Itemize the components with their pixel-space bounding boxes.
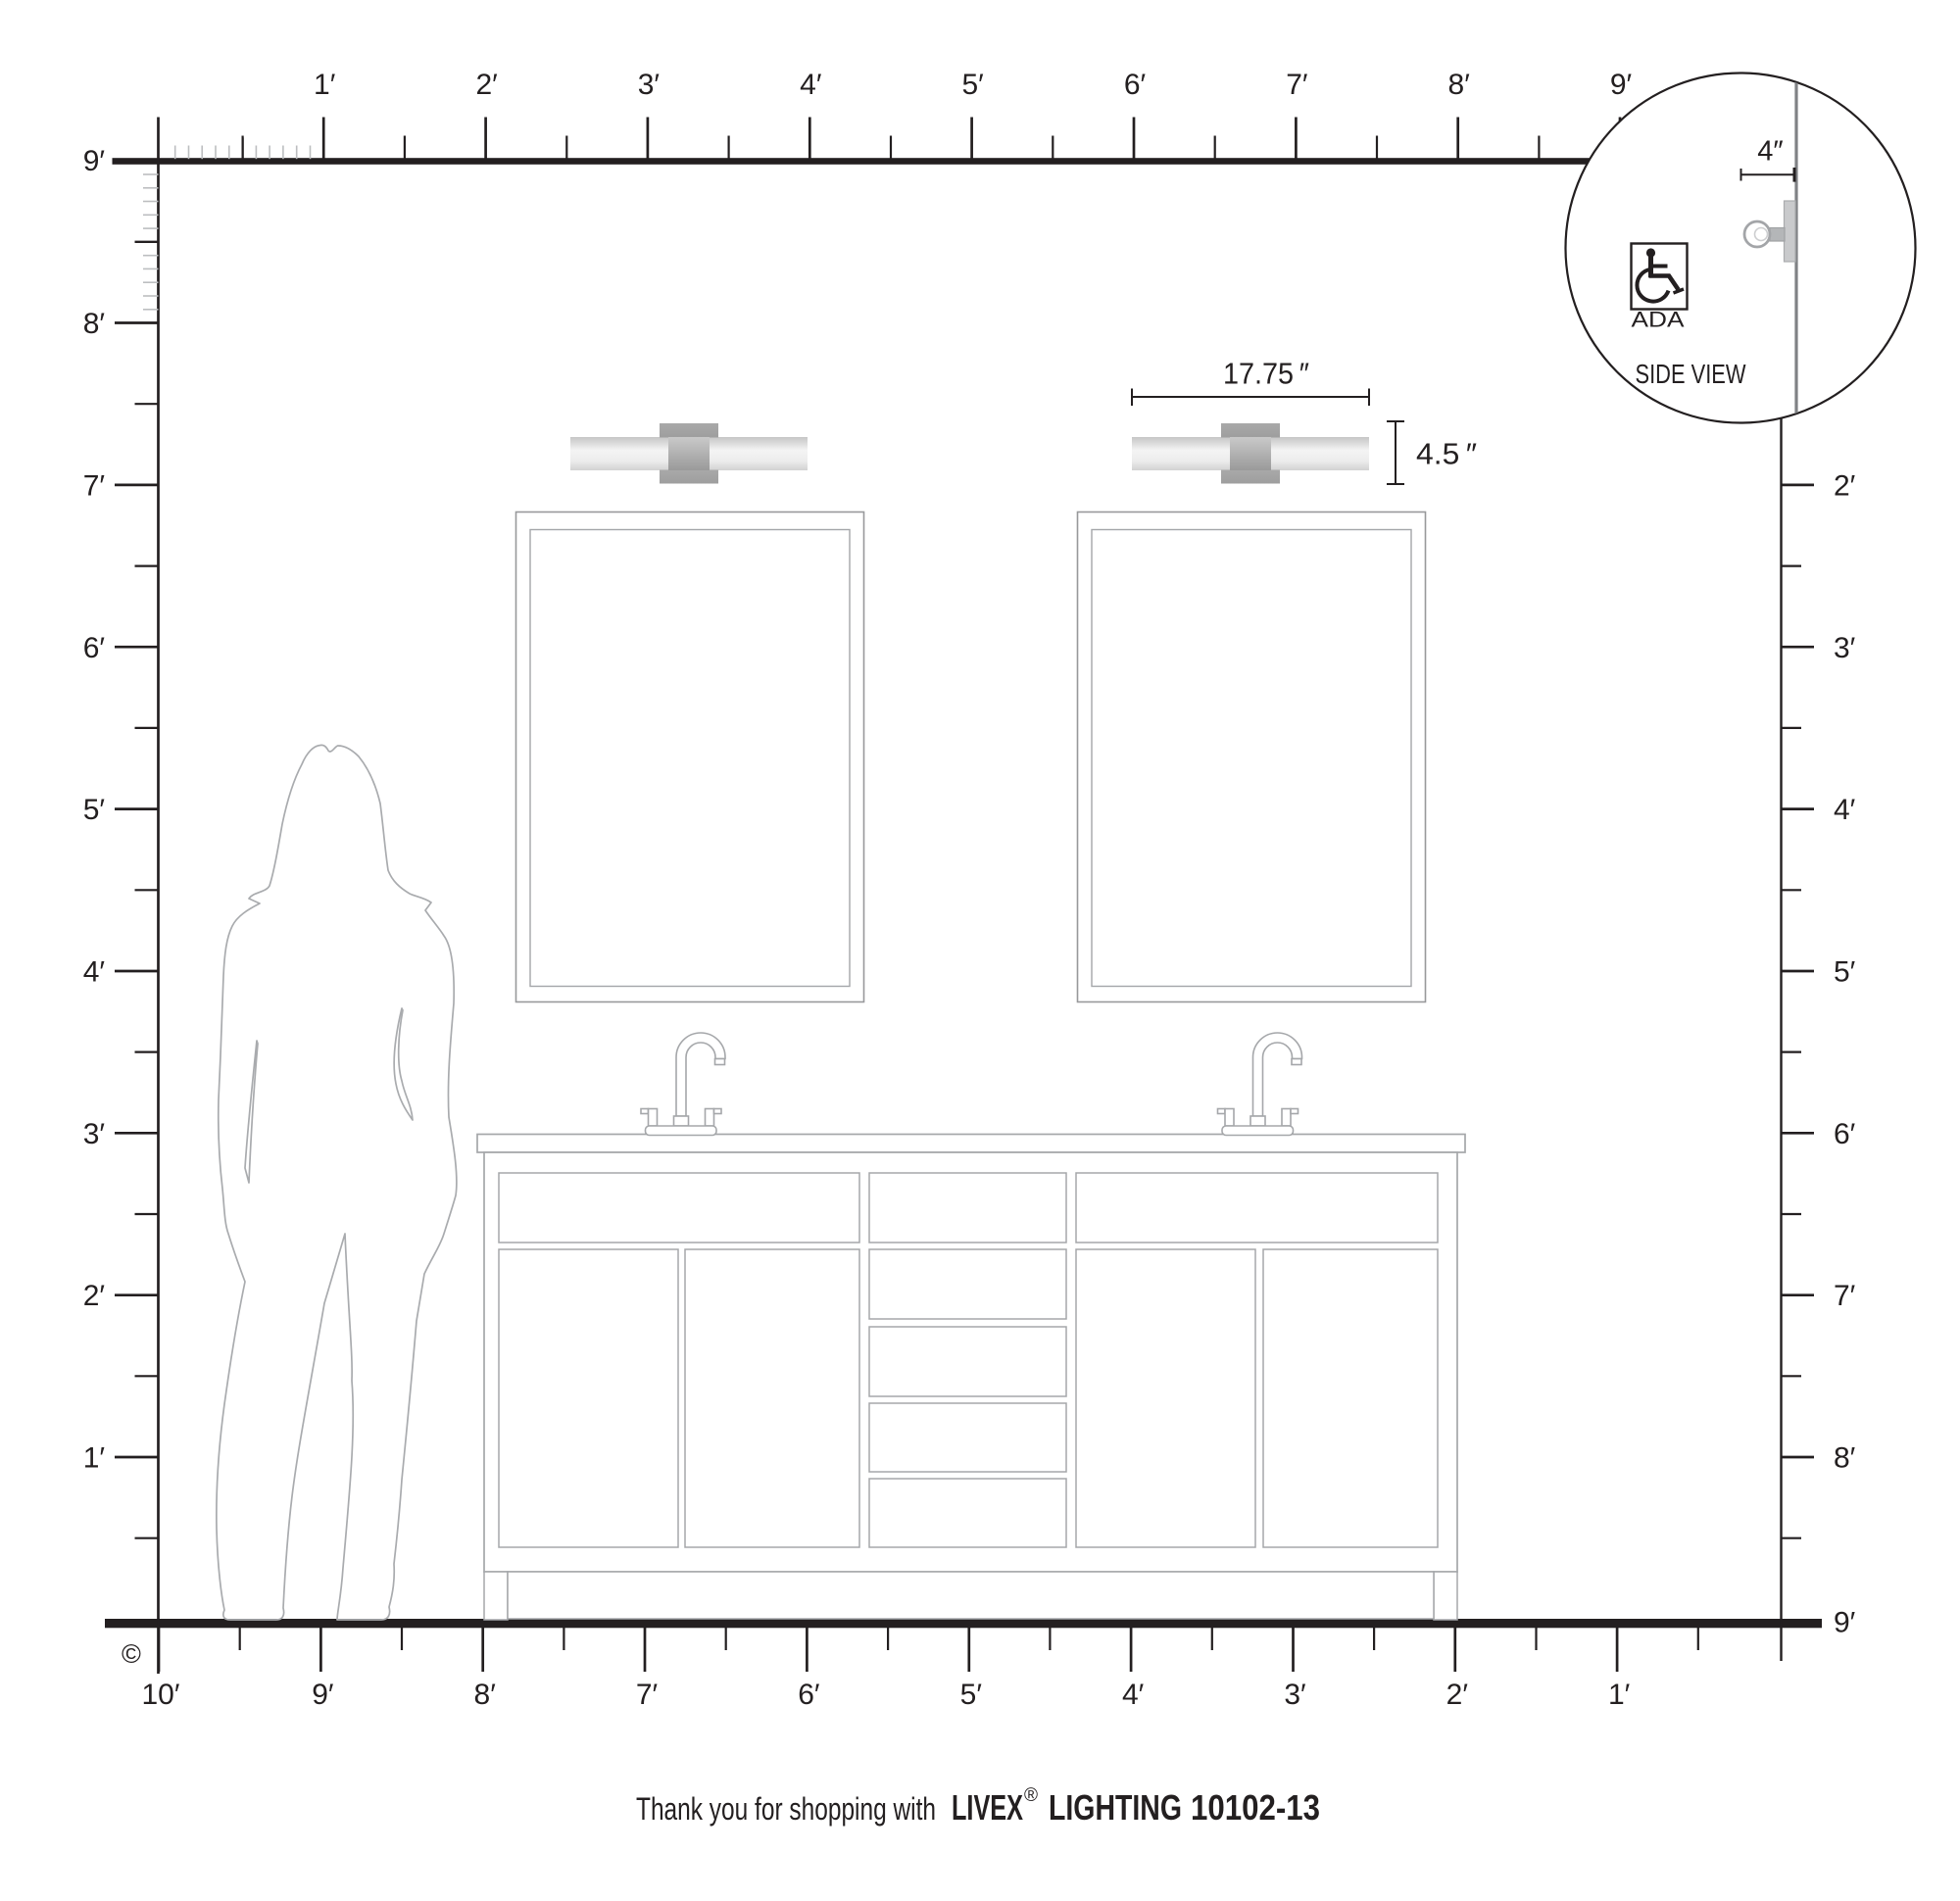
svg-text:4′: 4′	[1122, 1679, 1145, 1711]
svg-text:5′: 5′	[961, 69, 984, 101]
svg-text:5′: 5′	[83, 794, 106, 826]
svg-text:3′: 3′	[1284, 1679, 1306, 1711]
svg-text:SIDE VIEW: SIDE VIEW	[1636, 359, 1746, 389]
svg-text:4″: 4″	[1757, 136, 1783, 168]
svg-text:2′: 2′	[83, 1280, 106, 1312]
svg-text:7′: 7′	[83, 469, 106, 502]
svg-text:ADA: ADA	[1632, 308, 1685, 332]
svg-text:©: ©	[122, 1639, 141, 1669]
svg-text:4′: 4′	[83, 956, 106, 989]
svg-text:3′: 3′	[638, 69, 661, 101]
svg-text:Thank you for shopping withLIV: Thank you for shopping withLIVEX®LIGHTIN…	[636, 1785, 1320, 1828]
svg-text:1′: 1′	[1608, 1679, 1631, 1711]
svg-text:9′: 9′	[1610, 69, 1633, 101]
svg-text:10′: 10′	[142, 1679, 180, 1711]
svg-text:8′: 8′	[83, 308, 106, 340]
svg-text:8′: 8′	[474, 1679, 497, 1711]
svg-text:2′: 2′	[1446, 1679, 1469, 1711]
svg-text:5′: 5′	[960, 1679, 983, 1711]
svg-text:4.5 ″: 4.5 ″	[1416, 437, 1477, 471]
svg-text:5′: 5′	[1834, 956, 1856, 989]
svg-text:8′: 8′	[1834, 1442, 1856, 1475]
svg-text:6′: 6′	[1124, 69, 1147, 101]
svg-text:9′: 9′	[1834, 1607, 1856, 1639]
svg-text:9′: 9′	[312, 1679, 334, 1711]
svg-text:3′: 3′	[1834, 632, 1856, 664]
svg-text:4′: 4′	[1834, 794, 1856, 826]
svg-text:2′: 2′	[475, 69, 498, 101]
svg-text:1′: 1′	[314, 69, 336, 101]
svg-text:3′: 3′	[83, 1118, 106, 1150]
svg-text:7′: 7′	[636, 1679, 659, 1711]
svg-text:7′: 7′	[1286, 69, 1308, 101]
svg-text:1′: 1′	[83, 1442, 106, 1475]
svg-text:2′: 2′	[1834, 469, 1856, 502]
svg-text:4′: 4′	[800, 69, 822, 101]
svg-text:8′: 8′	[1448, 69, 1471, 101]
svg-text:6′: 6′	[83, 632, 106, 664]
svg-text:6′: 6′	[1834, 1118, 1856, 1150]
svg-text:7′: 7′	[1834, 1280, 1856, 1312]
svg-text:6′: 6′	[798, 1679, 820, 1711]
svg-text:9′: 9′	[83, 145, 106, 177]
svg-text:17.75 ″: 17.75 ″	[1223, 357, 1309, 391]
